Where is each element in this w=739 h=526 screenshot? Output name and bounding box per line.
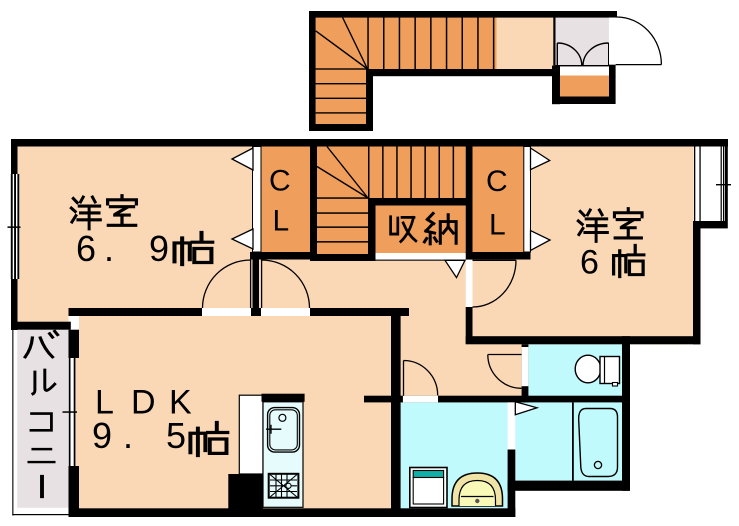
svg-text:5: 5 [166, 415, 186, 456]
svg-text:D: D [131, 384, 156, 422]
svg-text:.: . [104, 228, 114, 269]
svg-text:6: 6 [580, 244, 599, 282]
svg-text:6: 6 [76, 228, 96, 269]
svg-text:L: L [273, 205, 290, 238]
svg-text:C: C [486, 165, 508, 198]
svg-text:C: C [269, 165, 291, 198]
svg-text:9: 9 [149, 228, 169, 269]
svg-text:L: L [489, 209, 506, 242]
svg-text:.: . [123, 415, 133, 456]
svg-text:9: 9 [92, 415, 112, 456]
